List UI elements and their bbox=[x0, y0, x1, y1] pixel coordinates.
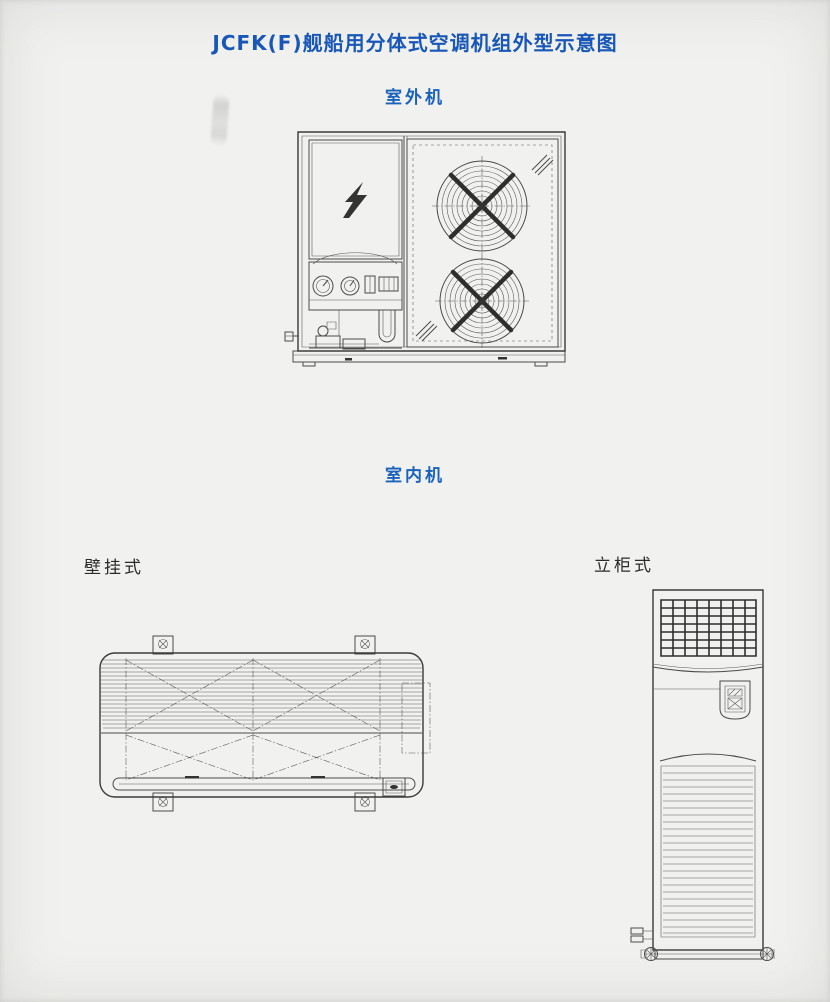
drain-fitting bbox=[383, 778, 405, 796]
wall-unit-drawing bbox=[93, 630, 433, 816]
hidden-component-outline bbox=[402, 683, 430, 753]
fan-bottom-icon bbox=[435, 254, 529, 348]
gauge-panel bbox=[309, 253, 402, 310]
page-title: JCFK(F)舰船用分体式空调机组外型示意图 bbox=[0, 27, 830, 56]
wall-mounted-label: 壁挂式 bbox=[84, 553, 144, 578]
louver-door-top bbox=[660, 754, 756, 761]
curved-trim bbox=[653, 667, 763, 672]
air-outlet-bar bbox=[113, 776, 415, 790]
lightning-bolt-icon bbox=[343, 182, 367, 218]
mounting-bracket bbox=[153, 793, 173, 811]
hatch-mark bbox=[532, 155, 553, 175]
mounting-bracket bbox=[355, 793, 375, 811]
electrical-door bbox=[309, 140, 402, 259]
service-valve bbox=[285, 332, 299, 341]
base-feet bbox=[641, 947, 775, 961]
control-panel-badge bbox=[720, 681, 750, 719]
floor-unit-body bbox=[653, 590, 763, 950]
cabinet-frame bbox=[298, 132, 565, 351]
mounting-bracket bbox=[355, 636, 375, 654]
floor-standing-label: 立柜式 bbox=[594, 551, 654, 576]
intake-louvers bbox=[100, 660, 423, 733]
outdoor-unit-label: 室外机 bbox=[0, 83, 830, 108]
base-rail bbox=[293, 351, 565, 366]
indoor-unit-label: 室内机 bbox=[0, 461, 830, 486]
fan-top-icon bbox=[432, 156, 532, 256]
mounting-bracket bbox=[153, 636, 173, 654]
discharge-grille bbox=[661, 600, 756, 656]
hatch-mark bbox=[416, 321, 437, 341]
return-louvers bbox=[661, 766, 755, 937]
wall-unit-body bbox=[100, 653, 423, 797]
scanned-page: JCFK(F)舰船用分体式空调机组外型示意图 室外机 bbox=[0, 0, 830, 1002]
pipe-fitting bbox=[631, 928, 653, 942]
piping-zone bbox=[309, 310, 402, 349]
floor-unit-drawing bbox=[625, 583, 775, 975]
outdoor-unit-drawing bbox=[283, 122, 573, 372]
fan-panel bbox=[407, 139, 558, 347]
